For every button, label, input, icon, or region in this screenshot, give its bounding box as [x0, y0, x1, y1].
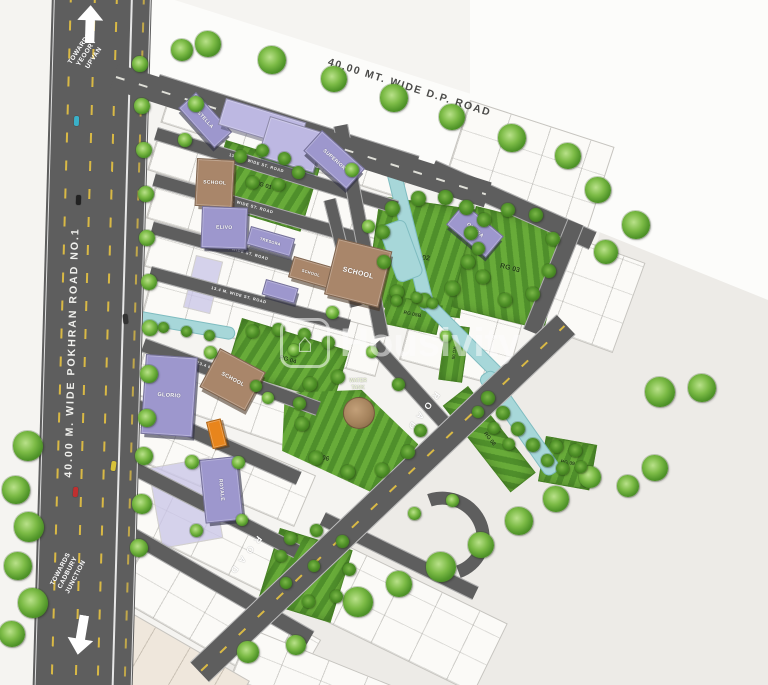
tree-icon: [132, 56, 148, 72]
tree-icon: [308, 560, 320, 572]
tree-icon: [459, 200, 474, 215]
tree-icon: [645, 377, 675, 407]
tree-icon: [446, 494, 459, 507]
green-area-label: RG 03: [499, 262, 520, 274]
vehicle-icon: [74, 116, 79, 126]
tree-icon: [292, 166, 305, 179]
tree-icon: [569, 444, 582, 457]
tree-icon: [322, 336, 335, 349]
building-label: STELLA: [196, 110, 215, 130]
tree-icon: [642, 455, 668, 481]
tree-icon: [380, 84, 408, 112]
tree-icon: [13, 431, 43, 461]
tree-icon: [331, 370, 345, 384]
tree-icon: [472, 242, 485, 255]
tree-icon: [426, 552, 456, 582]
tree-icon: [258, 46, 286, 74]
tree-icon: [401, 445, 415, 459]
tree-icon: [445, 281, 460, 296]
tree-icon: [343, 563, 356, 576]
tree-icon: [330, 590, 343, 603]
vehicle-icon: [73, 487, 79, 497]
tree-icon: [529, 208, 543, 222]
tree-icon: [391, 295, 402, 306]
tree-icon: [4, 552, 32, 580]
green-area-label: RG 05B: [403, 310, 422, 320]
tree-icon: [256, 144, 269, 157]
tree-icon: [138, 186, 154, 202]
tree-icon: [18, 588, 48, 618]
tree-icon: [236, 514, 248, 526]
tree-icon: [138, 409, 156, 427]
tree-icon: [392, 378, 405, 391]
tree-icon: [134, 98, 150, 114]
tree-icon: [188, 96, 204, 112]
tree-icon: [464, 226, 478, 240]
tree-icon: [130, 539, 148, 557]
tree-icon: [622, 211, 650, 239]
tree-icon: [476, 270, 490, 284]
tree-icon: [336, 535, 349, 548]
tree-icon: [688, 374, 716, 402]
tree-icon: [0, 621, 25, 647]
tree-icon: [272, 323, 285, 336]
tree-icon: [617, 475, 639, 497]
tree-icon: [139, 230, 155, 246]
tree-icon: [438, 190, 453, 205]
tree-icon: [427, 298, 438, 309]
tree-icon: [284, 532, 297, 545]
tree-icon: [411, 191, 426, 206]
tree-icon: [158, 322, 169, 333]
tree-icon: [501, 203, 515, 217]
tree-icon: [262, 392, 274, 404]
building-label: SCHOOL: [301, 267, 321, 277]
tree-icon: [141, 274, 157, 290]
tree-icon: [498, 293, 512, 307]
green-area-label: RG 04: [278, 355, 296, 366]
tree-icon: [135, 447, 153, 465]
tree-icon: [385, 201, 400, 216]
tree-icon: [468, 532, 494, 558]
water-tank: [343, 397, 375, 429]
tree-icon: [140, 365, 158, 383]
building-label: SCHOOL: [220, 371, 245, 388]
tree-icon: [377, 255, 391, 269]
tree-icon: [366, 346, 378, 358]
tree-icon: [204, 346, 217, 359]
tree-icon: [132, 494, 152, 514]
tree-icon: [345, 163, 359, 177]
tree-icon: [408, 507, 421, 520]
tree-icon: [321, 66, 347, 92]
vehicle-icon: [122, 314, 128, 324]
tree-icon: [278, 152, 291, 165]
tree-icon: [190, 524, 203, 537]
tree-icon: [302, 595, 315, 608]
tree-icon: [461, 255, 475, 269]
building-label: GLORIO: [157, 392, 181, 400]
tree-icon: [288, 344, 300, 356]
tree-icon: [234, 150, 247, 163]
green-area-label: RG 05: [451, 347, 458, 361]
tree-icon: [275, 550, 287, 562]
tree-icon: [237, 641, 259, 663]
tree-icon: [481, 391, 495, 405]
tree-icon: [543, 486, 569, 512]
tree-icon: [280, 577, 292, 589]
building-elivo: ELIVO: [201, 206, 248, 250]
tree-icon: [411, 292, 422, 303]
tree-icon: [142, 320, 158, 336]
tree-icon: [195, 31, 221, 57]
tree-icon: [326, 306, 339, 319]
tree-icon: [362, 220, 375, 233]
tree-icon: [376, 225, 390, 239]
building-label: SCHOOL: [203, 179, 226, 186]
tree-icon: [555, 143, 581, 169]
tree-icon: [246, 325, 259, 338]
tree-icon: [310, 524, 323, 537]
tree-icon: [181, 326, 192, 337]
building-label: ELIVO: [216, 225, 233, 232]
tree-icon: [414, 424, 427, 437]
tree-icon: [498, 124, 526, 152]
tree-icon: [309, 451, 323, 465]
tree-icon: [542, 264, 556, 278]
tree-icon: [178, 133, 192, 147]
tree-icon: [303, 377, 317, 391]
tree-icon: [185, 455, 199, 469]
tree-icon: [2, 476, 30, 504]
tree-icon: [341, 465, 355, 479]
tree-icon: [550, 440, 563, 453]
tree-icon: [204, 330, 215, 341]
tree-icon: [585, 177, 611, 203]
tree-icon: [14, 512, 44, 542]
tree-icon: [298, 328, 311, 341]
tree-icon: [375, 463, 389, 477]
tree-icon: [556, 462, 569, 475]
tree-icon: [488, 422, 500, 434]
tree-icon: [511, 422, 525, 436]
vehicle-icon: [76, 195, 81, 205]
tree-icon: [477, 213, 491, 227]
tree-icon: [136, 142, 152, 158]
tree-icon: [575, 461, 587, 473]
tree-icon: [386, 571, 412, 597]
building-label: TRESORA: [259, 236, 281, 247]
building-label: SCHOOL: [342, 266, 375, 280]
building-school: SCHOOL: [194, 158, 234, 208]
tree-icon: [293, 397, 306, 410]
tree-icon: [503, 438, 515, 450]
tree-icon: [171, 39, 193, 61]
tree-icon: [594, 240, 618, 264]
tree-icon: [246, 176, 259, 189]
building-label: SUPERIOR: [322, 148, 347, 172]
tree-icon: [496, 406, 510, 420]
tree-icon: [546, 232, 560, 246]
tree-icon: [250, 380, 262, 392]
tree-icon: [526, 438, 540, 452]
tree-icon: [272, 178, 285, 191]
tree-icon: [232, 456, 245, 469]
tree-icon: [295, 417, 309, 431]
tree-icon: [541, 454, 554, 467]
building-label: ROYALE: [217, 478, 225, 501]
tree-icon: [526, 287, 540, 301]
tree-icon: [439, 104, 465, 130]
direction-arrow-down-icon: [65, 613, 97, 657]
tree-icon: [440, 330, 452, 342]
site-plan-map: RG 01RG 02RG 03RG 04RG 05BRG 05RG 06RG 0…: [0, 0, 768, 685]
tree-icon: [343, 587, 373, 617]
tree-icon: [286, 635, 306, 655]
towards-cadbury-label: TOWARDS CADBURY JUNCTION: [42, 538, 95, 608]
tree-icon: [505, 507, 533, 535]
towards-yeoor-label: TOWARDS YEOOR / UPVAN: [58, 19, 116, 88]
tree-icon: [472, 406, 484, 418]
